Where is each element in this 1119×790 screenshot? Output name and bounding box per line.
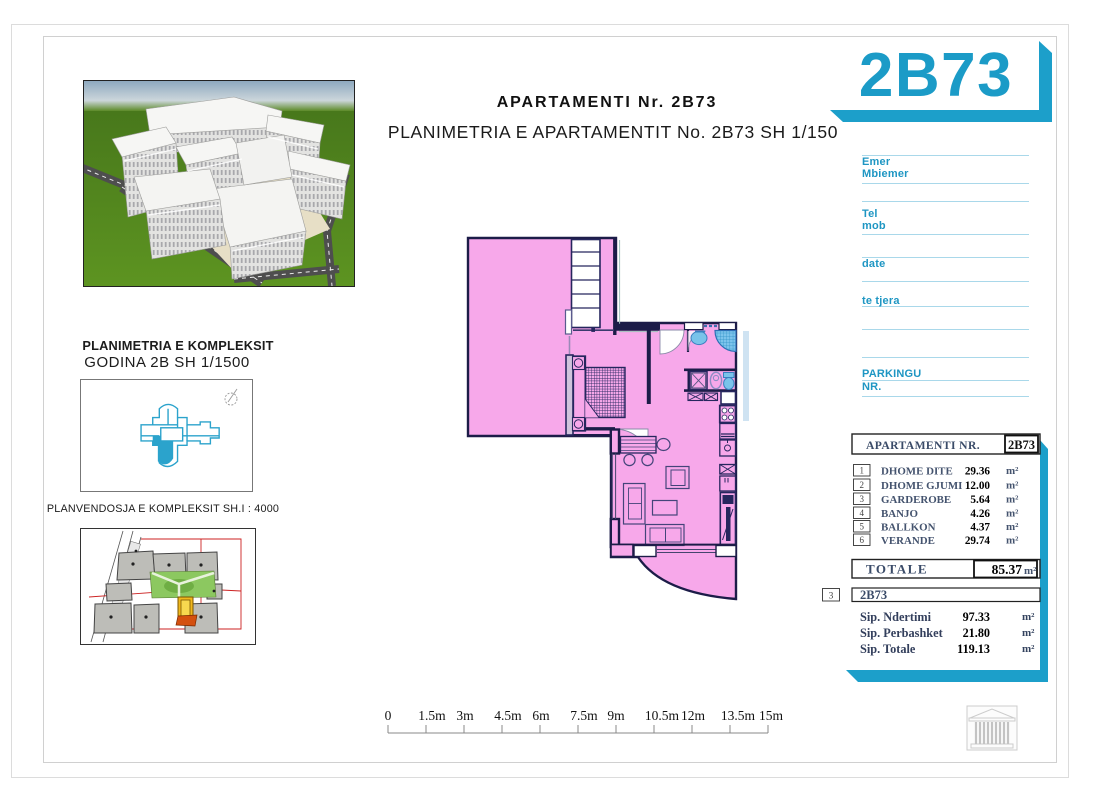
svg-text:APARTAMENTI NR.: APARTAMENTI NR. xyxy=(866,439,980,452)
svg-text:4.37: 4.37 xyxy=(970,522,990,534)
svg-text:GARDEROBE: GARDEROBE xyxy=(881,494,951,506)
svg-text:Sip. Totale: Sip. Totale xyxy=(860,642,916,656)
svg-text:DHOME GJUMI: DHOME GJUMI xyxy=(881,480,962,492)
svg-text:0: 0 xyxy=(385,708,392,723)
svg-text:9m: 9m xyxy=(607,708,625,723)
svg-text:4: 4 xyxy=(859,508,864,518)
svg-text:3: 3 xyxy=(859,494,864,504)
svg-text:85.37: 85.37 xyxy=(992,562,1023,577)
svg-text:12.00: 12.00 xyxy=(965,480,991,492)
svg-text:2B73: 2B73 xyxy=(860,588,887,602)
svg-text:10.5m: 10.5m xyxy=(645,708,680,723)
svg-text:m²: m² xyxy=(1006,465,1019,477)
svg-text:m²: m² xyxy=(1006,535,1019,547)
svg-text:97.33: 97.33 xyxy=(963,610,990,624)
svg-text:29.36: 29.36 xyxy=(965,466,991,478)
svg-text:29.74: 29.74 xyxy=(965,535,991,547)
svg-text:6: 6 xyxy=(859,535,864,545)
svg-text:m²: m² xyxy=(1006,521,1019,533)
svg-text:m²: m² xyxy=(1022,611,1035,623)
svg-text:3m: 3m xyxy=(456,708,474,723)
svg-text:7.5m: 7.5m xyxy=(570,708,598,723)
svg-text:BANJO: BANJO xyxy=(881,508,918,520)
svg-text:Sip. Perbashket: Sip. Perbashket xyxy=(860,626,944,640)
svg-text:1: 1 xyxy=(859,466,864,476)
svg-text:m²: m² xyxy=(1022,627,1035,639)
svg-text:VERANDE: VERANDE xyxy=(881,535,935,547)
svg-text:BALLKON: BALLKON xyxy=(881,522,936,534)
svg-text:2B73: 2B73 xyxy=(859,41,1013,110)
svg-text:m²: m² xyxy=(1006,494,1019,506)
svg-text:13.5m: 13.5m xyxy=(721,708,756,723)
svg-text:m²: m² xyxy=(1022,643,1035,655)
svg-text:21.80: 21.80 xyxy=(963,626,990,640)
svg-text:m²: m² xyxy=(1006,480,1019,492)
svg-text:TOTALE: TOTALE xyxy=(866,562,928,577)
svg-text:m²: m² xyxy=(1024,565,1037,577)
svg-text:12m: 12m xyxy=(681,708,706,723)
svg-text:2B73: 2B73 xyxy=(1008,438,1035,452)
svg-text:5: 5 xyxy=(859,522,864,532)
svg-text:119.13: 119.13 xyxy=(957,642,990,656)
svg-text:15m: 15m xyxy=(759,708,784,723)
svg-text:6m: 6m xyxy=(532,708,550,723)
svg-text:4.5m: 4.5m xyxy=(494,708,522,723)
svg-text:5.64: 5.64 xyxy=(970,494,990,506)
svg-text:3: 3 xyxy=(829,592,834,602)
svg-text:2: 2 xyxy=(859,480,864,490)
svg-text:DHOME DITE: DHOME DITE xyxy=(881,466,953,478)
svg-text:m²: m² xyxy=(1006,508,1019,520)
svg-text:Sip. Ndertimi: Sip. Ndertimi xyxy=(860,610,932,624)
svg-text:4.26: 4.26 xyxy=(970,508,990,520)
svg-text:1.5m: 1.5m xyxy=(418,708,446,723)
